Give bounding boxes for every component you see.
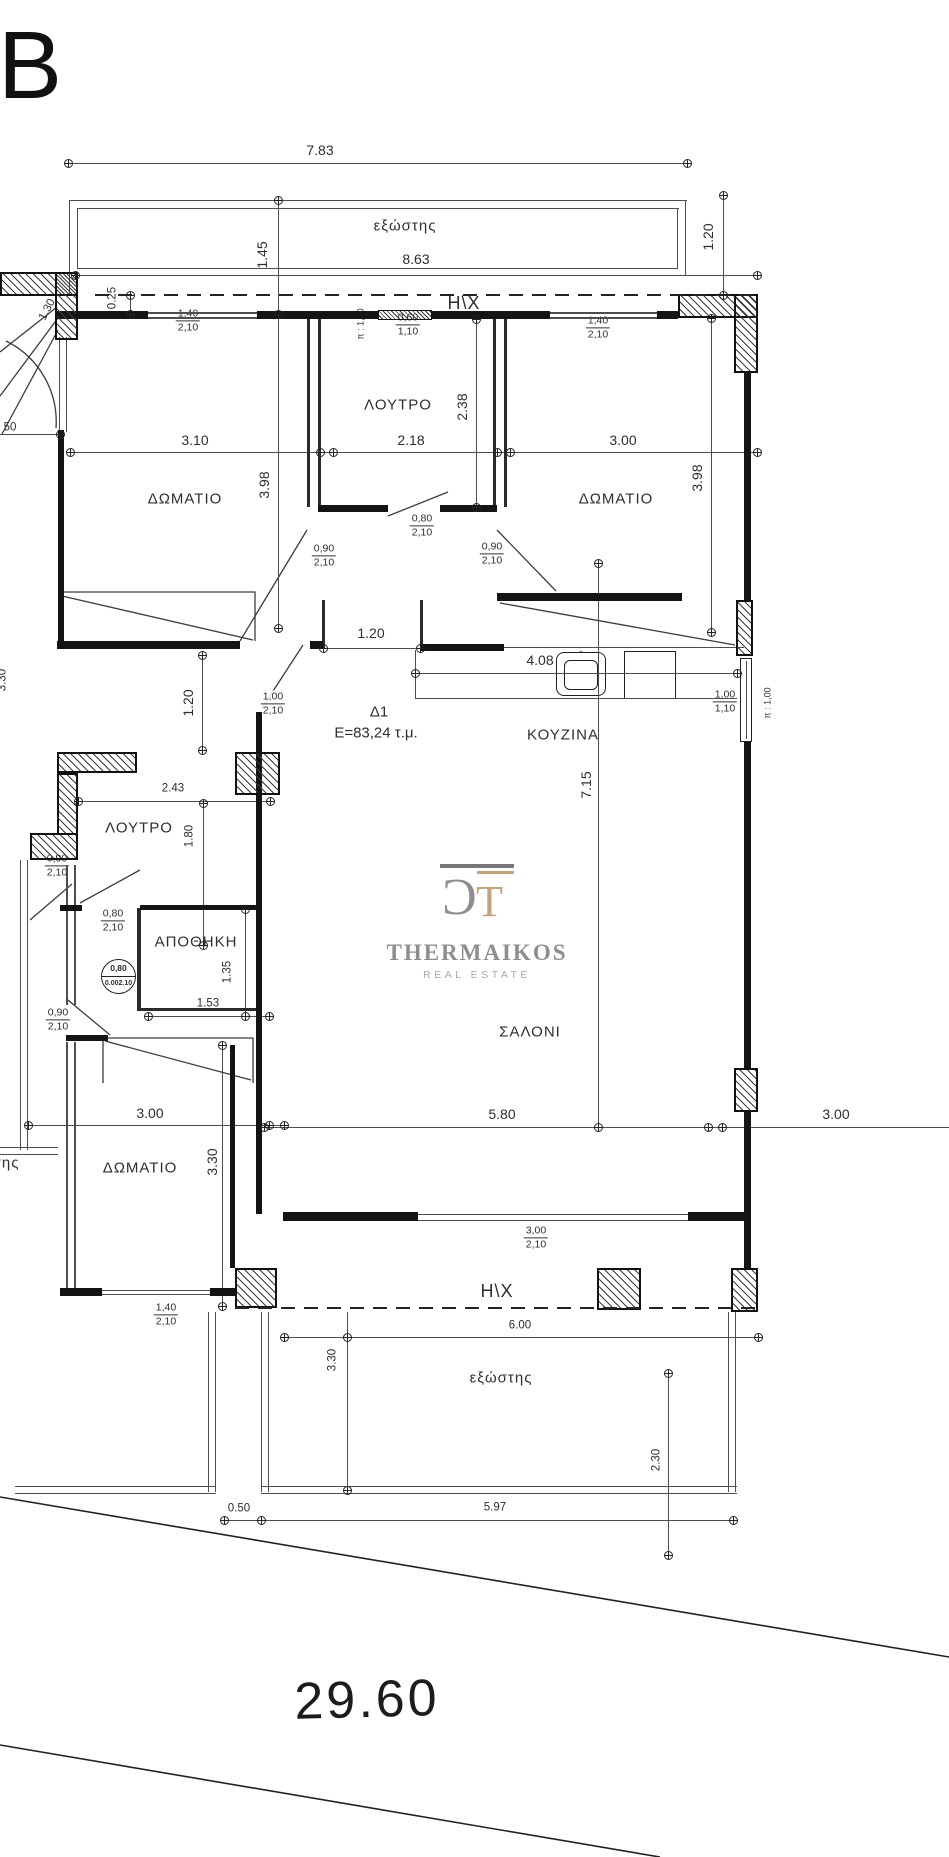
- column-hatched: [235, 752, 280, 795]
- dimension-marker: [472, 315, 481, 324]
- window-tag-3-00: 3,002,10: [523, 1224, 549, 1251]
- dimension-marker: [343, 1486, 352, 1495]
- door-tag-0-80-b: 0,802,10: [100, 907, 126, 934]
- window-tag-3-00-height: 2,10: [524, 1239, 548, 1252]
- dim-50-edge: 50: [4, 422, 17, 434]
- line: [59, 337, 60, 432]
- level-marker-bottom: 0.002.10: [102, 977, 135, 991]
- dimension-marker: [506, 448, 515, 457]
- line: [728, 1312, 729, 1492]
- wall: [744, 742, 751, 1068]
- line: [77, 268, 678, 269]
- window-tag-1-40-c-height: 2,10: [154, 1316, 178, 1329]
- hx-dashed-line: [95, 294, 758, 296]
- dimension-marker: [280, 1121, 289, 1130]
- dimension-marker: [274, 624, 283, 633]
- partition-wall: [493, 319, 496, 507]
- line: [66, 1042, 68, 1292]
- room-bedroom-1: ΔΩΜΑΤΙΟ: [148, 492, 223, 507]
- line: [20, 860, 21, 1150]
- door-tag-0-80-a-height: 2,10: [410, 527, 434, 540]
- window-tag-1-40-c: 1,402,10: [153, 1301, 179, 1328]
- dim-3-98-right: 3.98: [690, 464, 704, 491]
- door-leaf-bath-2: [80, 870, 140, 903]
- dimension-marker: [343, 1333, 352, 1342]
- dimension-marker: [729, 1516, 738, 1525]
- wall: [688, 1212, 745, 1221]
- dimension-marker: [241, 905, 250, 914]
- monogram-bar-tan: [477, 871, 514, 874]
- line: [75, 275, 758, 276]
- line: [415, 698, 737, 699]
- line: [77, 208, 78, 268]
- sheet-letter: B: [0, 18, 62, 114]
- line: [78, 801, 270, 802]
- dimension-marker: [64, 159, 73, 168]
- line: [148, 312, 257, 314]
- dim-5-97: 5.97: [484, 1502, 506, 1514]
- door-leaf-bedroom-2: [497, 530, 556, 591]
- dim-1-45: 1.45: [255, 241, 269, 268]
- line: [685, 200, 686, 275]
- floor-plan-canvas: 0,80 0.002.10 C T THERMAIKOS REAL ESTATE…: [0, 0, 949, 1857]
- line: [723, 195, 724, 295]
- dimension-marker: [24, 1121, 33, 1130]
- line: [208, 1312, 209, 1492]
- dimension-marker: [472, 503, 481, 512]
- line: [476, 319, 477, 507]
- dimension-marker: [265, 1012, 274, 1021]
- wall: [230, 1045, 235, 1268]
- wall: [744, 373, 751, 600]
- kitchen-window-pane: [746, 661, 747, 739]
- apartment-area: E=83,24 τ.μ.: [334, 726, 417, 741]
- label-balcony-bottom: εξώστης: [470, 1371, 533, 1386]
- dimension-marker: [719, 191, 728, 200]
- wall: [432, 311, 550, 319]
- dim-3-30-edge: 3.30: [0, 669, 9, 691]
- dim-3-10: 3.10: [181, 433, 208, 447]
- column-hatched: [55, 272, 78, 340]
- door-tag-1-00: 1,002,10: [260, 690, 286, 717]
- line: [70, 452, 758, 453]
- level-marker-symbol: 0,80 0.002.10: [101, 959, 136, 994]
- room-kitchen: ΚΟΥΖΙΝΑ: [527, 728, 599, 743]
- line: [15, 1486, 216, 1487]
- column-hatched: [235, 1268, 277, 1308]
- dimension-marker: [683, 159, 692, 168]
- room-bedroom-3: ΔΩΜΑΤΙΟ: [103, 1161, 178, 1176]
- dimension-marker: [316, 448, 325, 457]
- column-hatched: [736, 600, 753, 656]
- dimension-marker: [416, 644, 425, 653]
- line: [202, 655, 203, 751]
- line: [102, 1290, 210, 1291]
- line: [0, 1154, 58, 1155]
- wall: [744, 1112, 751, 1268]
- room-bedroom-2: ΔΩΜΑΤΙΟ: [579, 492, 654, 507]
- label-hx-bottom: H\X: [480, 1282, 513, 1300]
- logo-subtitle: REAL ESTATE: [362, 969, 592, 981]
- line: [550, 317, 657, 319]
- thermaikos-monogram-icon: C T: [440, 864, 514, 928]
- line: [268, 1312, 269, 1492]
- window-tag-1-40-a-width: 1,40: [176, 307, 200, 321]
- apartment-id: Δ1: [370, 705, 388, 720]
- line: [245, 909, 246, 1016]
- line: [550, 312, 657, 314]
- line: [66, 337, 67, 432]
- dimension-marker: [664, 1551, 673, 1560]
- line: [148, 1016, 269, 1017]
- dim-3-00-top: 3.00: [609, 433, 636, 447]
- dimension-marker: [199, 941, 208, 950]
- cabinet-diagonal: [500, 603, 735, 645]
- line: [203, 803, 204, 945]
- window-sill-hatched: [378, 310, 432, 320]
- monogram-left-glyph: C: [442, 868, 477, 927]
- dim-7-15: 7.15: [579, 771, 593, 798]
- window-tag-1-00: 1,001,10: [712, 688, 738, 715]
- wall: [60, 1288, 102, 1296]
- dimension-marker: [220, 1516, 229, 1525]
- window-tag-1-40-c-width: 1,40: [154, 1301, 178, 1315]
- dimension-marker: [754, 1333, 763, 1342]
- door-tag-1-00-height: 2,10: [261, 705, 285, 718]
- door-tag-0-90-a-height: 2,10: [312, 557, 336, 570]
- line: [222, 1045, 223, 1306]
- dimension-marker: [707, 628, 716, 637]
- line: [68, 163, 688, 164]
- wall: [58, 430, 64, 649]
- line: [0, 1147, 58, 1148]
- property-line-2: [0, 1745, 660, 1857]
- partition-wall: [137, 908, 141, 1008]
- window-tag-1-40-b-height: 2,10: [586, 329, 610, 342]
- dim-3-98-left: 3.98: [257, 471, 271, 498]
- line: [66, 865, 68, 1005]
- line: [323, 648, 421, 649]
- dim-1-20-top-right: 1.20: [701, 223, 715, 250]
- label-hx-top: H\X: [447, 294, 480, 312]
- dim-8-63: 8.63: [402, 252, 429, 266]
- line: [148, 317, 257, 319]
- dim-4-08: 4.08: [526, 653, 553, 667]
- dimension-marker: [274, 310, 283, 319]
- dim-3-00-lower-left: 3.00: [136, 1106, 163, 1120]
- door-tag-1-00-width: 1,00: [261, 690, 285, 704]
- dimension-marker: [707, 314, 716, 323]
- line: [261, 1312, 262, 1492]
- dimension-marker: [198, 746, 207, 755]
- dimension-marker: [144, 1012, 153, 1021]
- column-hatched: [30, 833, 78, 860]
- dimension-marker: [198, 651, 207, 660]
- dimension-marker: [56, 430, 65, 439]
- kitchen-stove: [624, 651, 676, 699]
- room-living: ΣΑΛΟΝΙ: [499, 1025, 561, 1040]
- dimension-marker: [319, 644, 328, 653]
- wardrobe-bedroom-1: [60, 592, 255, 641]
- logo-wordmark: THERMAIKOS: [362, 940, 592, 966]
- dim-1-20-hall: 1.20: [357, 626, 384, 640]
- dimension-marker: [274, 196, 283, 205]
- door-tag-0-80-b-width: 0,80: [101, 907, 125, 921]
- label-balcony-left-clipped: εξώστης: [0, 1156, 19, 1171]
- line: [102, 1294, 210, 1295]
- door-leaf-bedroom-1: [240, 530, 307, 641]
- column-hatched: [731, 1268, 758, 1312]
- column-hatched: [734, 294, 758, 373]
- dim-5-80: 5.80: [488, 1107, 515, 1121]
- dimension-marker: [329, 448, 338, 457]
- dimension-marker: [733, 669, 742, 678]
- line: [27, 860, 28, 1150]
- room-storage: ΑΠΟΘΗΚΗ: [155, 935, 238, 950]
- dimension-marker: [753, 271, 762, 280]
- wall: [420, 644, 504, 651]
- line: [677, 208, 678, 268]
- dimension-marker: [218, 1302, 227, 1311]
- dim-0-50: 0.50: [228, 1503, 250, 1515]
- line: [264, 1127, 949, 1128]
- door-tag-0-90-d-height: 2,10: [46, 1021, 70, 1034]
- column-hatched: [57, 752, 137, 773]
- door-tag-0-80-a-width: 0,80: [410, 512, 434, 526]
- dim-3-30-left: 3.30: [205, 1148, 219, 1175]
- window-tag-3-00-width: 3,00: [524, 1224, 548, 1238]
- label-balcony-top: εξώστης: [374, 219, 437, 234]
- line: [215, 1312, 216, 1492]
- line: [503, 647, 744, 648]
- stair-treads: [0, 307, 58, 434]
- dim-2-18: 2.18: [397, 433, 424, 447]
- dim-7-83: 7.83: [306, 143, 333, 157]
- line: [0, 434, 60, 435]
- dim-1-80: 1.80: [184, 825, 196, 847]
- partition-wall: [318, 319, 321, 507]
- door-leaf-bedroom-3: [68, 1000, 110, 1035]
- dim-1-20-left: 1.20: [181, 689, 195, 716]
- room-bath-top: ΛΟΥΤΡΟ: [364, 398, 432, 413]
- dim-1-35: 1.35: [222, 961, 234, 983]
- line: [224, 1520, 733, 1521]
- thermaikos-logo: C T THERMAIKOS REAL ESTATE: [362, 864, 592, 981]
- door-tag-0-90-b-height: 2,10: [480, 555, 504, 568]
- dimension-marker: [241, 1012, 250, 1021]
- dim-pi-1-00-right: π : 1,00: [764, 687, 773, 718]
- dimension-marker: [126, 310, 135, 319]
- partition-wall: [137, 1008, 259, 1011]
- dim-3-30-balcony: 3.30: [327, 1349, 339, 1371]
- dim-3-00-right: 3.00: [822, 1107, 849, 1121]
- window-tag-1-00-height: 1,10: [713, 703, 737, 716]
- line: [261, 1493, 737, 1494]
- line: [74, 865, 76, 1005]
- dim-2-43: 2.43: [162, 783, 184, 795]
- hx-dashed-line: [235, 1307, 758, 1309]
- partition-wall: [307, 319, 310, 507]
- line: [284, 1337, 758, 1338]
- door-tag-0-90-d: 0,902,10: [45, 1006, 71, 1033]
- property-line-1: [0, 1497, 949, 1657]
- column-hatched: [734, 1068, 758, 1112]
- dim-2-30: 2.30: [651, 1449, 663, 1471]
- dimension-marker: [199, 799, 208, 808]
- wall: [66, 1035, 108, 1041]
- dimension-marker: [493, 448, 502, 457]
- kitchen-sink-basin: [564, 660, 598, 690]
- dimension-marker: [753, 448, 762, 457]
- line: [69, 200, 687, 201]
- room-bath-2: ΛΟΥΤΡΟ: [105, 821, 173, 836]
- partition-wall: [420, 600, 423, 645]
- dimension-marker: [257, 1516, 266, 1525]
- wall: [283, 1212, 418, 1221]
- dim-29-60: 29.60: [294, 1672, 440, 1728]
- line: [74, 1042, 76, 1292]
- partition-wall: [504, 319, 507, 507]
- dim-0-25: 0.25: [107, 287, 119, 309]
- line: [15, 1493, 216, 1494]
- line: [278, 200, 279, 628]
- wall: [657, 311, 678, 319]
- dimension-marker: [411, 669, 420, 678]
- line: [77, 208, 679, 209]
- dimension-marker: [594, 1123, 603, 1132]
- wall: [440, 505, 497, 512]
- level-marker-top: 0,80: [102, 960, 135, 977]
- line: [668, 1373, 669, 1555]
- wall: [210, 1288, 235, 1296]
- door-tag-0-90-b: 0,902,10: [479, 540, 505, 567]
- line: [415, 673, 738, 674]
- dim-6-00: 6.00: [509, 1320, 531, 1332]
- dimension-marker: [704, 1123, 713, 1132]
- monogram-right-glyph: T: [476, 876, 503, 927]
- dimension-marker: [66, 448, 75, 457]
- dim-2-38: 2.38: [455, 393, 469, 420]
- dimension-marker: [266, 797, 275, 806]
- line: [418, 1220, 690, 1221]
- dimension-marker: [126, 291, 135, 300]
- door-tag-0-90-b-width: 0,90: [480, 540, 504, 554]
- dimension-marker: [280, 1333, 289, 1342]
- line: [418, 1214, 690, 1215]
- door-tag-0-90-a-width: 0,90: [312, 542, 336, 556]
- dimension-marker: [594, 559, 603, 568]
- dimension-marker: [260, 1123, 269, 1132]
- door-tag-0-80-a: 0,802,10: [409, 512, 435, 539]
- wall: [57, 641, 240, 649]
- dimension-marker: [718, 1123, 727, 1132]
- window-tag-0-60-height: 1,10: [396, 326, 420, 339]
- door-tag-0-90-a: 0,902,10: [311, 542, 337, 569]
- line: [261, 1486, 737, 1487]
- wall: [497, 593, 682, 601]
- line: [735, 1312, 736, 1492]
- line: [711, 318, 712, 632]
- dimension-marker: [664, 1369, 673, 1378]
- window-tag-1-40-a-height: 2,10: [176, 322, 200, 335]
- stair-arc: [6, 341, 56, 428]
- door-tag-0-90-d-width: 0,90: [46, 1006, 70, 1020]
- wall: [318, 505, 388, 512]
- window-tag-1-00-width: 1,00: [713, 688, 737, 702]
- door-tag-0-80-b-height: 2,10: [101, 922, 125, 935]
- dimension-marker: [74, 797, 83, 806]
- column-hatched: [597, 1268, 641, 1310]
- dimension-marker: [71, 271, 80, 280]
- dimension-marker: [218, 1041, 227, 1050]
- dimension-marker: [719, 291, 728, 300]
- wall: [60, 905, 82, 911]
